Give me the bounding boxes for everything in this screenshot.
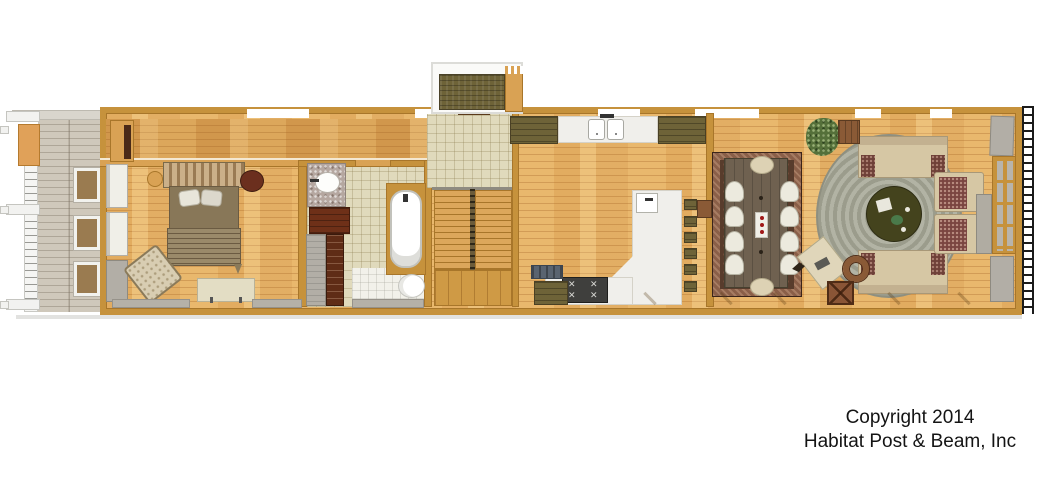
kitchen-faucet-icon	[600, 114, 614, 118]
dining-chair	[725, 181, 744, 202]
stoop-steps	[439, 74, 505, 110]
dining-chair	[725, 206, 744, 227]
back-wall-face	[106, 119, 428, 159]
door-mat-1	[74, 168, 100, 202]
floor-plan-canvas: ✕ ✕ ✕ ✕	[0, 0, 1050, 484]
french-window	[992, 156, 1016, 254]
sofa-arm-cushion	[861, 155, 875, 177]
closet-door	[306, 234, 326, 306]
kitchen-sink-basin-left	[588, 119, 605, 140]
table-plant	[891, 215, 903, 225]
burner: ✕	[568, 280, 576, 289]
ottoman-ring	[843, 256, 869, 282]
bed-pillow-left	[178, 189, 201, 208]
island-prep-sink	[636, 193, 658, 213]
stair-flight-right	[475, 190, 512, 270]
bed-pillow-right	[200, 189, 223, 207]
dining-end-seat-top	[750, 156, 774, 174]
bench-foot	[239, 297, 242, 303]
armchair-cushion	[939, 177, 967, 209]
rafter-gap	[930, 109, 952, 118]
porch-post-mid	[6, 204, 40, 215]
nightstand-left	[147, 171, 163, 187]
dining-end-seat-bottom	[750, 278, 774, 296]
bench-foot	[210, 297, 213, 303]
toilet	[398, 274, 425, 298]
entry-tile-floor	[427, 114, 512, 188]
planter-box	[838, 120, 860, 144]
tub-faucet-icon	[403, 194, 408, 202]
end-table-square	[827, 281, 854, 305]
porch-post-stub-top	[0, 126, 9, 134]
bottom-window-band	[112, 299, 190, 308]
porch-post-stub-mid	[0, 206, 9, 214]
vanity-faucet-icon	[310, 179, 319, 182]
closet-shelves	[326, 234, 344, 306]
sofa-back	[859, 137, 947, 145]
bed-blanket-lower	[167, 228, 241, 266]
candle	[760, 223, 764, 227]
table-item	[814, 257, 830, 271]
bottom-window-band	[352, 299, 424, 308]
upper-cabinet-left	[510, 116, 558, 144]
rafter-gap	[855, 109, 881, 118]
table-glass	[905, 207, 910, 212]
console-table	[976, 194, 992, 254]
bedroom-window-2	[106, 212, 128, 256]
house-shadow	[16, 315, 1022, 319]
candle	[760, 216, 764, 220]
table-knot	[759, 196, 763, 200]
dining-chair	[780, 231, 799, 252]
dresser	[110, 120, 134, 162]
sofa-back	[859, 285, 947, 293]
dining-chair	[725, 231, 744, 252]
porch-post-stub-bottom	[0, 301, 9, 309]
table-glass	[901, 227, 906, 232]
bottom-window-band	[252, 299, 302, 308]
bar-stool-5	[684, 264, 697, 275]
wall-ledge	[100, 158, 430, 167]
porch-railing	[24, 150, 38, 312]
copyright-text: Copyright 2014 Habitat Post & Beam, Inc	[757, 406, 1050, 454]
window-pane	[1007, 161, 1013, 251]
stoop-landing	[505, 70, 523, 112]
bar-stool-3	[684, 232, 697, 243]
bedroom-wall-panel	[106, 260, 128, 302]
sofa-bottom	[858, 250, 948, 294]
door-mat-2	[74, 216, 100, 250]
kitchen-sink-basin-right	[607, 119, 624, 140]
rafter-gap	[247, 109, 309, 118]
candle	[760, 230, 764, 234]
stoop-balusters	[505, 66, 523, 74]
stair-flight-left	[434, 190, 471, 270]
wall-panel-bottom-right	[990, 256, 1014, 302]
bed-canopy	[163, 162, 245, 188]
dining-chair	[780, 181, 799, 202]
copyright-line2: Habitat Post & Beam, Inc	[757, 430, 1050, 454]
base-cabinet	[534, 281, 568, 305]
door-mat-3	[74, 262, 100, 296]
porch-step-table	[18, 124, 40, 166]
exterior-stair-rail	[1022, 106, 1034, 314]
bedroom-bench	[197, 278, 255, 302]
table-knot	[759, 250, 763, 254]
stair-rail	[470, 189, 475, 272]
round-coffee-table	[866, 186, 922, 242]
bar-stool-1	[684, 199, 697, 210]
wall-panel-top-right	[989, 116, 1014, 157]
vanity-sink	[315, 172, 340, 193]
bedroom-window-1	[106, 164, 128, 208]
drain-dot	[615, 133, 617, 135]
stair-landing	[434, 270, 512, 306]
counter-blue	[531, 265, 563, 279]
drain-dot	[596, 133, 598, 135]
window-pane	[997, 161, 1003, 251]
dresser-front	[124, 125, 131, 159]
nightstand-right	[240, 170, 264, 192]
burner: ✕	[568, 291, 576, 300]
dining-chair	[780, 206, 799, 227]
burner: ✕	[590, 291, 598, 300]
sofa-arm-cushion	[931, 253, 945, 275]
porch-post-top	[6, 111, 40, 122]
upper-cabinet-right	[658, 116, 706, 144]
hall-side-table	[697, 200, 712, 218]
candle-tray	[755, 212, 768, 238]
bar-stool-2	[684, 216, 697, 227]
prep-faucet-icon	[645, 198, 653, 201]
armchair-cushion	[939, 219, 967, 251]
bar-stool-4	[684, 248, 697, 259]
stove: ✕ ✕ ✕ ✕	[562, 277, 608, 303]
porch-post-bottom	[6, 299, 40, 310]
table-paper	[876, 197, 893, 212]
bar-stool-6	[684, 281, 697, 292]
dining-chair	[725, 254, 744, 275]
burner: ✕	[590, 280, 598, 289]
vanity-cabinet	[309, 207, 350, 234]
copyright-line1: Copyright 2014	[757, 406, 1050, 430]
